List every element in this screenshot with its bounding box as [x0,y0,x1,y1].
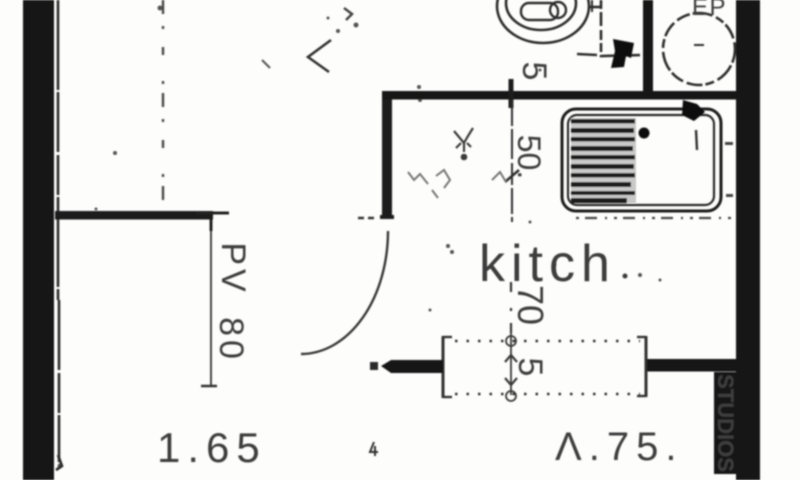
svg-text:STUDIOS: STUDIOS [713,374,738,472]
svg-text:EP: EP [692,0,727,21]
svg-text:50.: 50. [511,135,547,179]
svg-text:PV: PV [214,242,252,295]
svg-text:80: 80 [212,317,250,363]
svg-text:kitch: kitch [479,235,616,293]
svg-text:5: 5 [515,62,553,81]
svg-text:1.65: 1.65 [157,424,267,471]
svg-text:Λ.75.: Λ.75. [555,425,683,469]
svg-text:5: 5 [511,358,549,377]
